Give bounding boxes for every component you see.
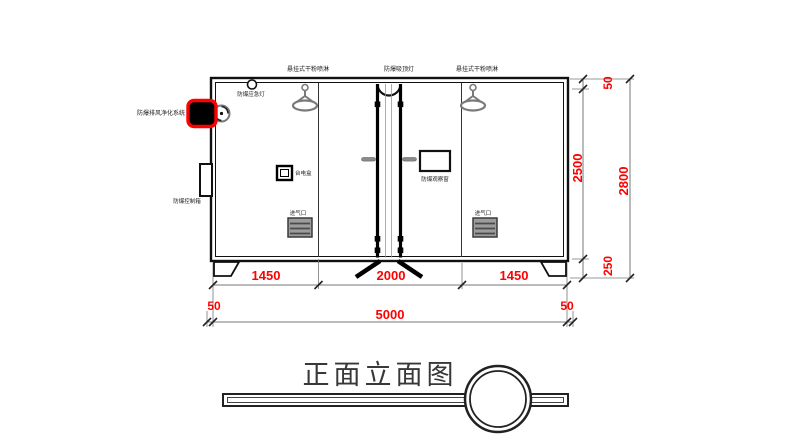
dim-total-height: 2800 (616, 167, 631, 196)
container-outline (211, 78, 568, 261)
label-control-box: 防爆控制箱 (173, 197, 201, 205)
dim-roof-thickness: 50 (601, 76, 615, 90)
air-inlet-right-icon (473, 218, 497, 237)
label-air-inlet-right: 进气口 (475, 209, 492, 217)
junction-box (277, 166, 292, 180)
dim-total-width: 5000 (376, 307, 405, 322)
label-junction-box: 台电盒 (295, 169, 312, 177)
label-sprinkler-right: 悬挂式干粉喷淋 (456, 65, 498, 73)
dim-width-left-panel: 1450 (252, 268, 281, 283)
label-emergency-light: 防爆应急灯 (237, 90, 265, 98)
fan-hub-icon (220, 112, 223, 115)
hinge-icon (375, 248, 381, 254)
dim-base-height: 250 (601, 256, 615, 276)
dim-width-center: 2000 (377, 268, 406, 283)
hinge-icon (398, 102, 404, 108)
drawing-title: 正面立面图 (303, 360, 458, 390)
observation-window (420, 151, 450, 171)
dim-body-height: 2500 (570, 154, 585, 183)
dim-overhang-left: 50 (207, 299, 221, 313)
foot-left (214, 262, 239, 276)
dim-width-right-panel: 1450 (500, 268, 529, 283)
air-inlet-left-icon (288, 218, 312, 237)
ventilation-unit-housing (188, 101, 216, 127)
hinge-icon (375, 102, 381, 108)
hinge-icon (398, 236, 404, 242)
door-handle-left (362, 158, 376, 162)
container-outer-wall (211, 78, 568, 261)
front-elevation-drawing: 悬挂式干粉喷淋 防爆吸顶灯 悬挂式干粉喷淋 防爆应急灯 防爆排风净化系统 防爆控… (0, 0, 800, 445)
door-handle-right (403, 158, 417, 162)
label-sprinkler-left: 悬挂式干粉喷淋 (287, 65, 329, 73)
emergency-light-icon (248, 80, 257, 89)
dim-overhang-right: 50 (560, 299, 574, 313)
label-observation-window: 防爆观察窗 (421, 175, 449, 183)
control-box (200, 164, 212, 196)
label-air-inlet-left: 进气口 (290, 209, 307, 217)
label-ventilation-system: 防爆排风净化系统 (137, 109, 185, 117)
hinge-icon (398, 248, 404, 254)
section-symbol-circle (465, 366, 531, 432)
label-ceiling-lamp: 防爆吸顶灯 (384, 65, 414, 73)
foot-right (541, 262, 566, 276)
hinge-icon (375, 236, 381, 242)
